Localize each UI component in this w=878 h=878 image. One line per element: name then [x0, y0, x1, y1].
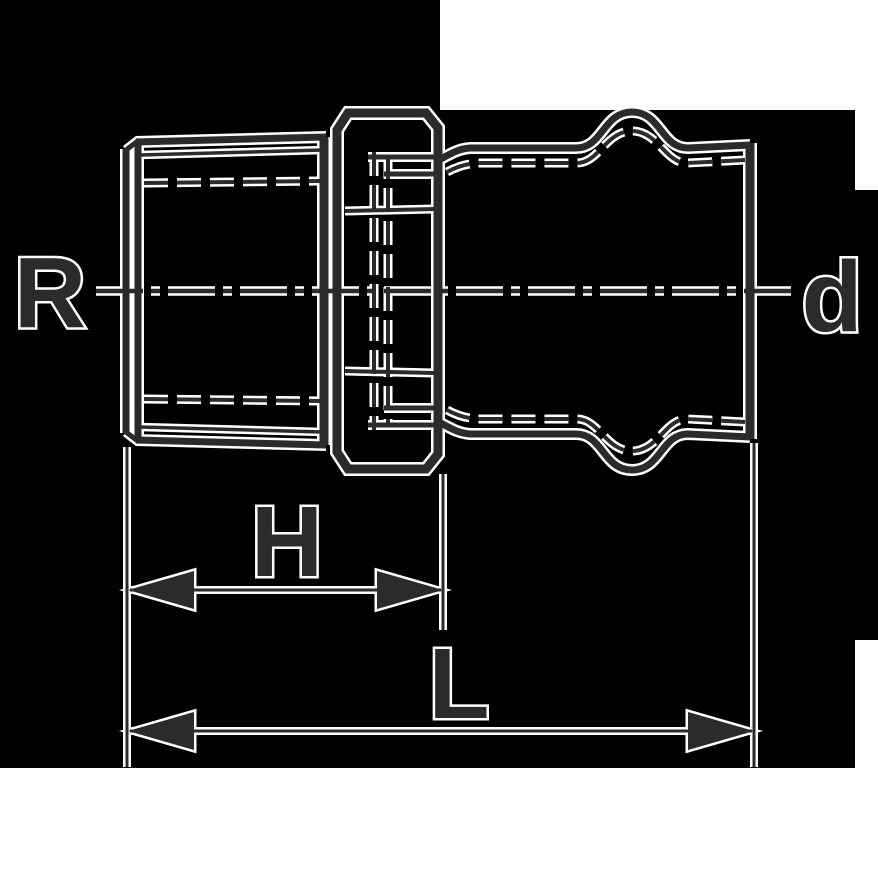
drawing-svg: R d H L: [0, 0, 878, 878]
fitting-technical-drawing: R d H L: [0, 0, 878, 878]
